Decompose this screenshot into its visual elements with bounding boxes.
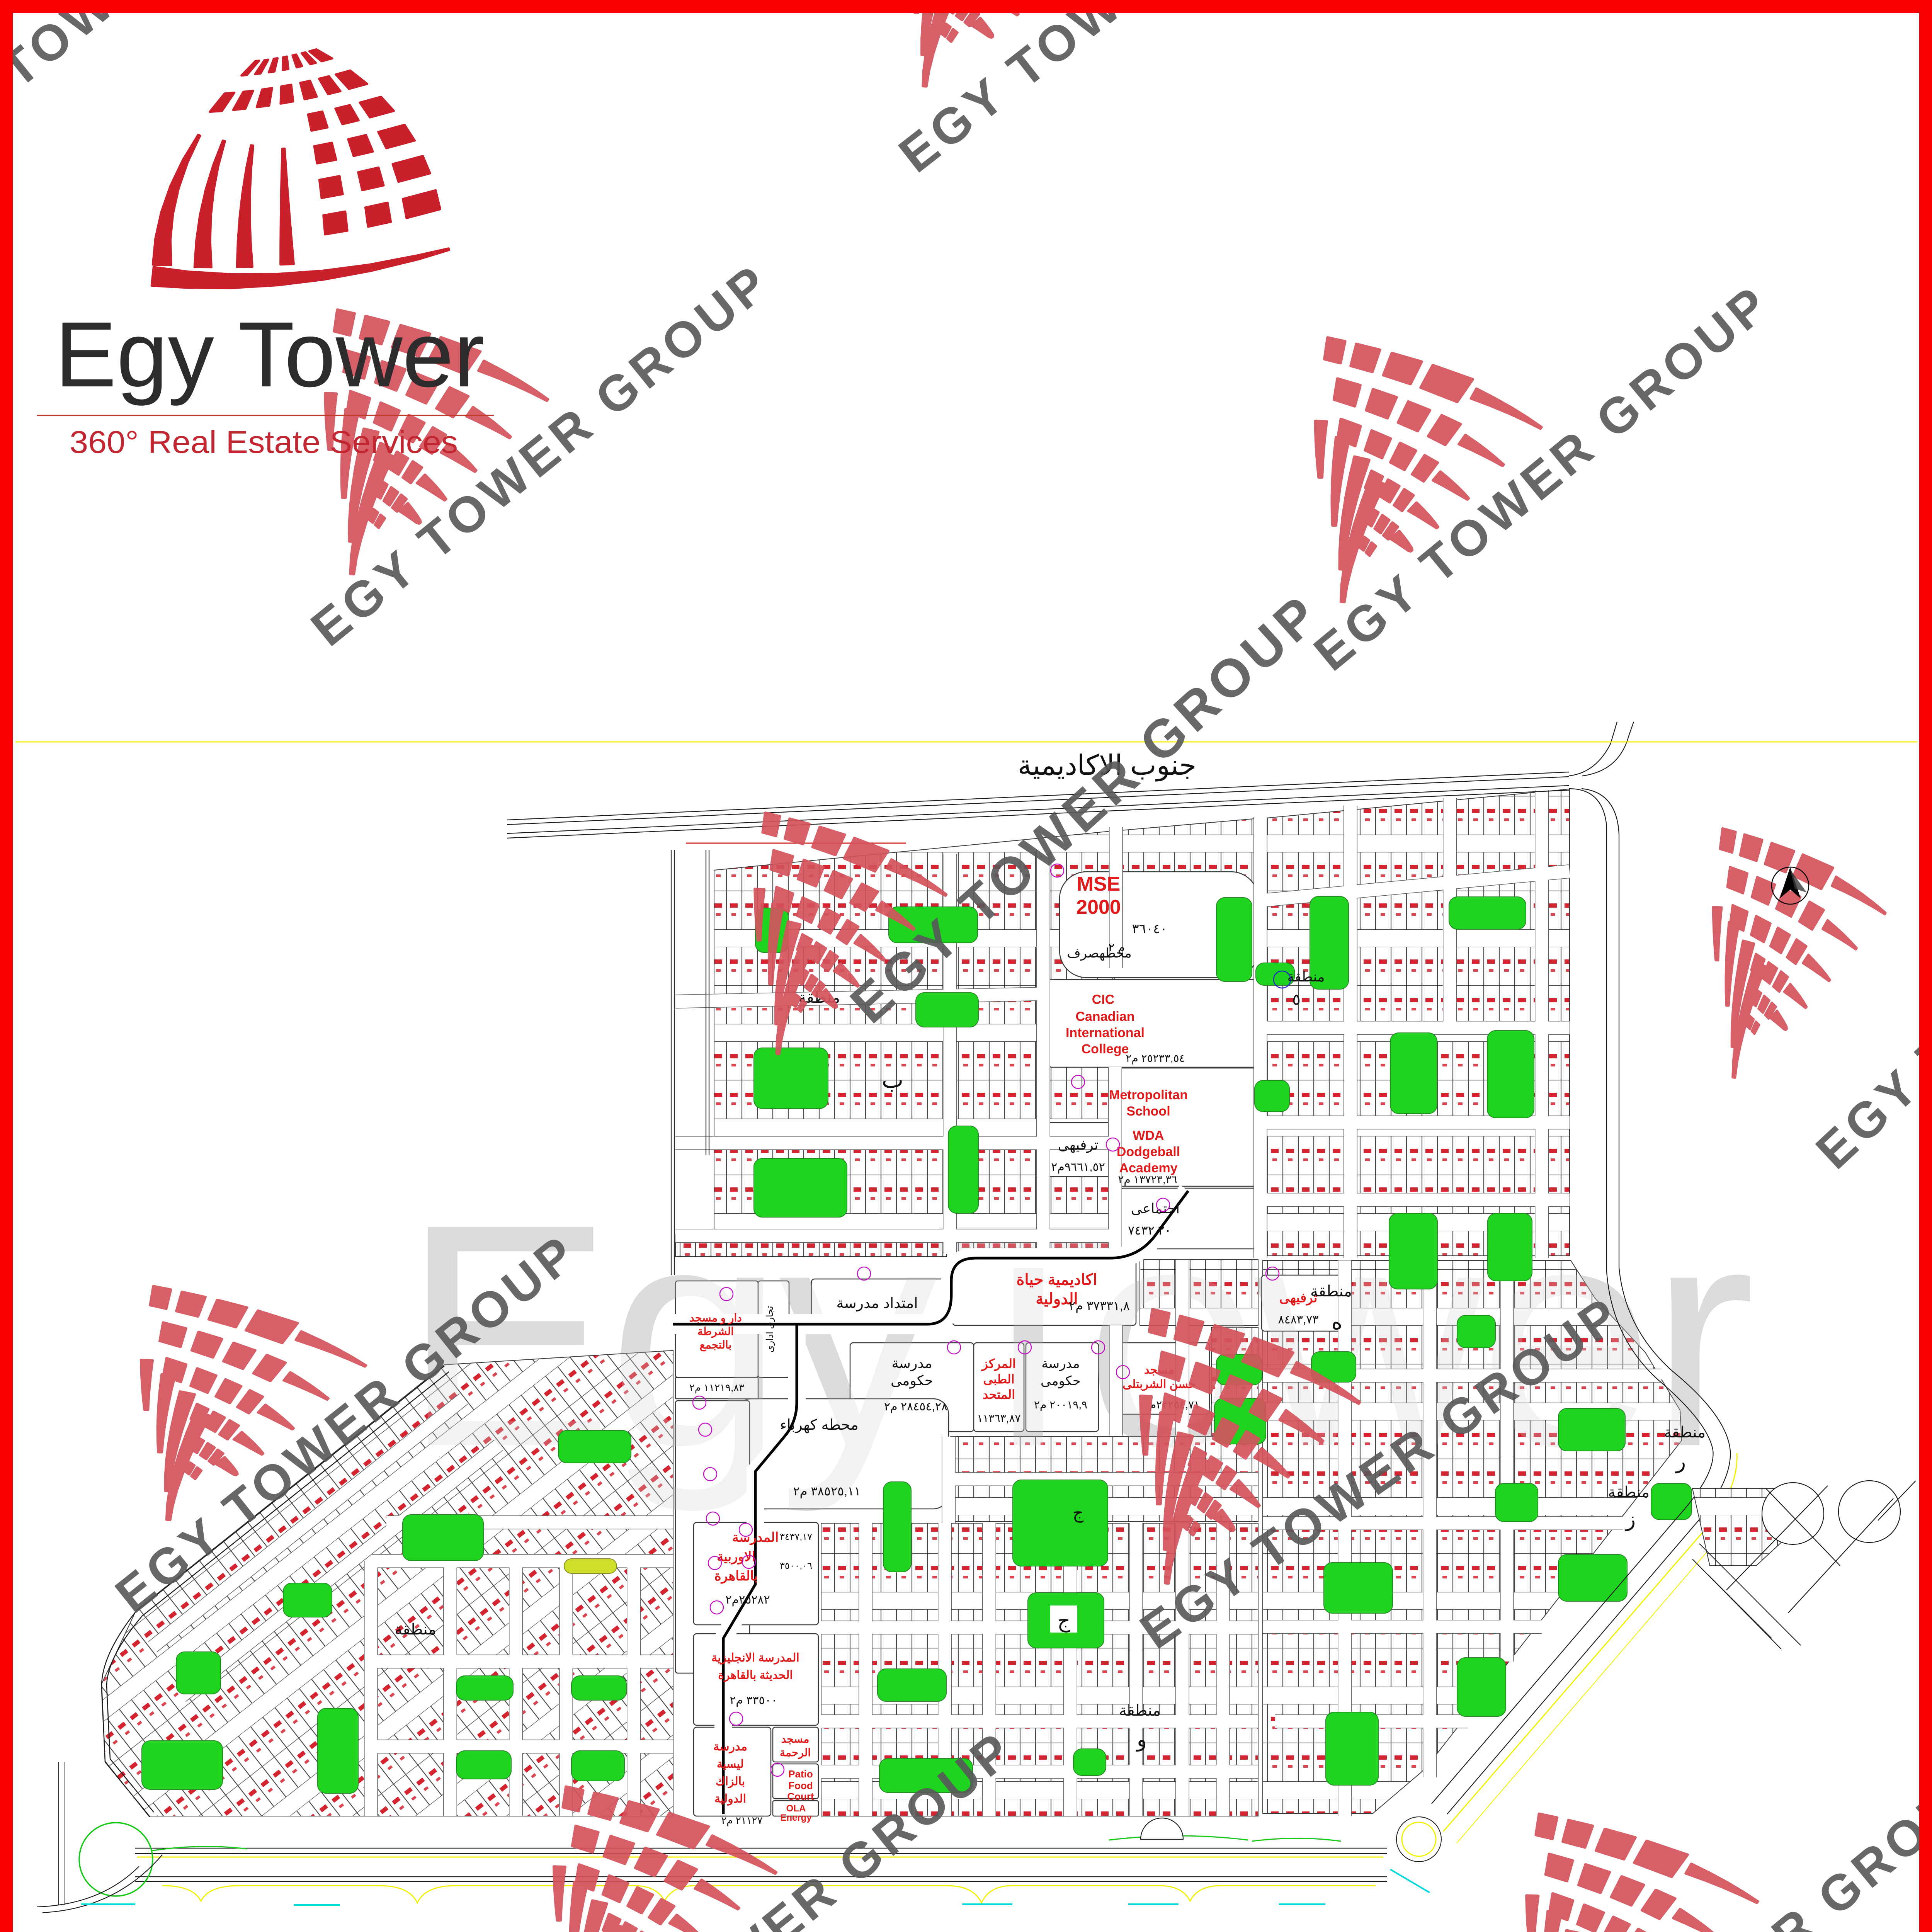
- svg-text:منطقة: منطقة: [1119, 1702, 1161, 1719]
- svg-text:OLA: OLA: [786, 1803, 806, 1814]
- svg-text:المتحد: المتحد: [983, 1388, 1015, 1401]
- svg-text:الشرطة: الشرطة: [697, 1325, 734, 1338]
- svg-text:منطقة: منطقة: [1287, 969, 1325, 985]
- svg-text:ليسية: ليسية: [717, 1758, 744, 1770]
- svg-text:٥: ٥: [1292, 991, 1300, 1008]
- svg-text:بالقاهرة: بالقاهرة: [714, 1569, 758, 1584]
- svg-text:٩٦٦١,٥٢م٢: ٩٦٦١,٥٢م٢: [1051, 1161, 1105, 1174]
- svg-text:محطهصرف: محطهصرف: [1067, 946, 1131, 961]
- svg-text:مسجد: مسجد: [781, 1733, 810, 1745]
- svg-text:٧٤٣٢,٢٠: ٧٤٣٢,٢٠: [1128, 1223, 1171, 1237]
- svg-text:الرحمة: الرحمة: [780, 1747, 811, 1759]
- svg-text:٢٠٠١٩,٩ م٢: ٢٠٠١٩,٩ م٢: [1034, 1399, 1087, 1411]
- svg-text:اجتماعى: اجتماعى: [1131, 1201, 1180, 1216]
- svg-text:Metropolitan: Metropolitan: [1109, 1088, 1188, 1102]
- svg-text:حسن الشربتلى: حسن الشربتلى: [1122, 1378, 1196, 1391]
- svg-text:CIC: CIC: [1092, 992, 1115, 1007]
- svg-text:١٣٧٢٣,٣٦ م٢: ١٣٧٢٣,٣٦ م٢: [1118, 1173, 1177, 1186]
- svg-text:بالتجمع: بالتجمع: [700, 1339, 731, 1352]
- svg-text:٢٨٤٥٤,٢٨ م٢: ٢٨٤٥٤,٢٨ م٢: [884, 1400, 947, 1413]
- svg-text:Dodgeball: Dodgeball: [1117, 1145, 1180, 1159]
- svg-text:ز: ز: [1624, 1508, 1636, 1532]
- svg-text:مدرسة: مدرسة: [713, 1740, 747, 1753]
- svg-text:ب: ب: [882, 1067, 903, 1093]
- svg-text:Canadian: Canadian: [1075, 1009, 1134, 1024]
- svg-text:منطقة: منطقة: [1664, 1424, 1706, 1441]
- svg-text:حكومى: حكومى: [891, 1372, 933, 1389]
- svg-text:ترفيهى: ترفيهى: [1058, 1137, 1099, 1153]
- svg-text:٣٥٠٠,٠٦: ٣٥٠٠,٠٦: [780, 1561, 812, 1571]
- svg-text:Food: Food: [788, 1780, 813, 1791]
- svg-text:ه: ه: [1332, 1311, 1342, 1334]
- svg-text:ج: ج: [1073, 1503, 1084, 1523]
- svg-text:٢١١٢٧ م٢: ٢١١٢٧ م٢: [721, 1815, 762, 1827]
- svg-text:MSE: MSE: [1077, 873, 1121, 895]
- svg-text:٣٣٥٠٠ م٢: ٣٣٥٠٠ م٢: [730, 1694, 777, 1707]
- svg-text:١١٣٦٣,٨٧: ١١٣٦٣,٨٧: [977, 1412, 1020, 1424]
- svg-text:٣٤٣٧,١٧: ٣٤٣٧,١٧: [780, 1532, 812, 1542]
- svg-text:اكاديمية حياة: اكاديمية حياة: [1017, 1271, 1097, 1288]
- svg-text:المدرسة: المدرسة: [732, 1530, 779, 1545]
- svg-text:ر: ر: [1675, 1450, 1686, 1474]
- svg-text:Patio: Patio: [788, 1768, 813, 1780]
- svg-text:و: و: [1136, 1728, 1147, 1752]
- svg-text:Energy: Energy: [780, 1813, 812, 1823]
- svg-text:امتداد مدرسة: امتداد مدرسة: [836, 1295, 918, 1312]
- svg-text:٢٥٢٣٣,٥٤ م٢: ٢٥٢٣٣,٥٤ م٢: [1126, 1052, 1185, 1065]
- svg-text:المركز: المركز: [981, 1357, 1016, 1371]
- svg-text:١١٢١٩,٨٣ م٢: ١١٢١٩,٨٣ م٢: [689, 1382, 744, 1394]
- svg-text:تجارى ادارى: تجارى ادارى: [765, 1306, 775, 1353]
- svg-text:الحديثة بالقاهرة: الحديثة بالقاهرة: [718, 1669, 793, 1682]
- svg-text:ج: ج: [1057, 1610, 1070, 1633]
- svg-text:محطه كهرباء: محطه كهرباء: [780, 1417, 859, 1434]
- svg-text:بالزاك: بالزاك: [716, 1775, 745, 1788]
- svg-text:المدرسة الانجليزية: المدرسة الانجليزية: [711, 1651, 799, 1665]
- svg-text:منطقة: منطقة: [395, 1621, 436, 1638]
- svg-text:٣٨٥٢٥,١١ م٢: ٣٨٥٢٥,١١ م٢: [793, 1484, 861, 1498]
- svg-text:٨٤٨٣,٧٣: ٨٤٨٣,٧٣: [1278, 1313, 1318, 1326]
- svg-text:School: School: [1126, 1104, 1170, 1119]
- svg-text:مدرسة: مدرسة: [891, 1355, 932, 1371]
- svg-text:مدرسة: مدرسة: [1041, 1356, 1080, 1371]
- svg-text:منطقة: منطقة: [1310, 1283, 1352, 1300]
- svg-text:دار و مسجد: دار و مسجد: [689, 1312, 742, 1325]
- svg-text:2000: 2000: [1076, 896, 1121, 918]
- svg-text:٢٥٢٨٢م٢: ٢٥٢٨٢م٢: [725, 1594, 770, 1607]
- svg-text:٣٧٣٣١,٨ م٢: ٣٧٣٣١,٨ م٢: [1069, 1299, 1130, 1313]
- svg-text:الدولية: الدولية: [714, 1793, 746, 1806]
- svg-text:الاوربية: الاوربية: [717, 1549, 755, 1565]
- svg-text:WDA: WDA: [1133, 1128, 1164, 1143]
- svg-text:منطقة: منطقة: [1608, 1484, 1650, 1501]
- svg-text:360° Real Estate Services: 360° Real Estate Services: [70, 425, 458, 460]
- svg-text:Court: Court: [787, 1791, 814, 1802]
- svg-text:Egy Tower: Egy Tower: [55, 303, 485, 406]
- svg-text:٣٦٠٤٠: ٣٦٠٤٠: [1132, 922, 1167, 936]
- svg-text:حكومى: حكومى: [1041, 1374, 1081, 1389]
- svg-text:College: College: [1082, 1042, 1129, 1056]
- svg-text:الطبى: الطبى: [983, 1372, 1014, 1386]
- svg-text:International: International: [1066, 1026, 1145, 1040]
